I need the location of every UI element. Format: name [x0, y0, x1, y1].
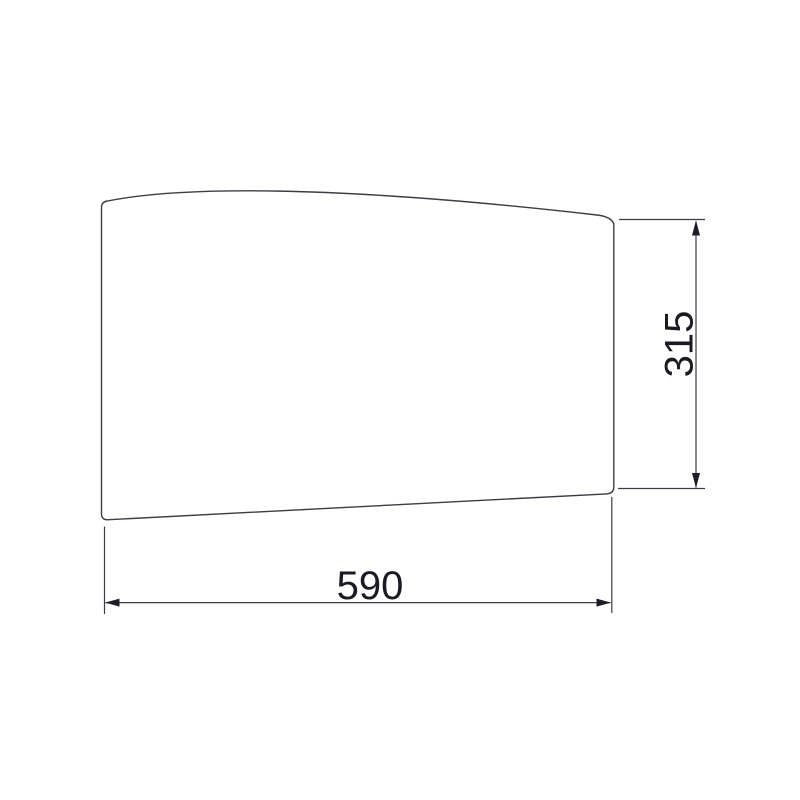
- arrow-right-icon: [597, 599, 612, 607]
- dimension-drawing: 315 590: [0, 0, 800, 800]
- arrow-left-icon: [105, 599, 120, 607]
- arrow-down-icon: [692, 473, 700, 488]
- height-dimension: 315: [618, 220, 705, 489]
- technical-drawing-page: 315 590: [0, 0, 800, 800]
- panel-outline: [102, 191, 614, 520]
- height-dimension-label: 315: [658, 311, 702, 378]
- arrow-up-icon: [692, 221, 700, 236]
- width-dimension-label: 590: [337, 564, 404, 608]
